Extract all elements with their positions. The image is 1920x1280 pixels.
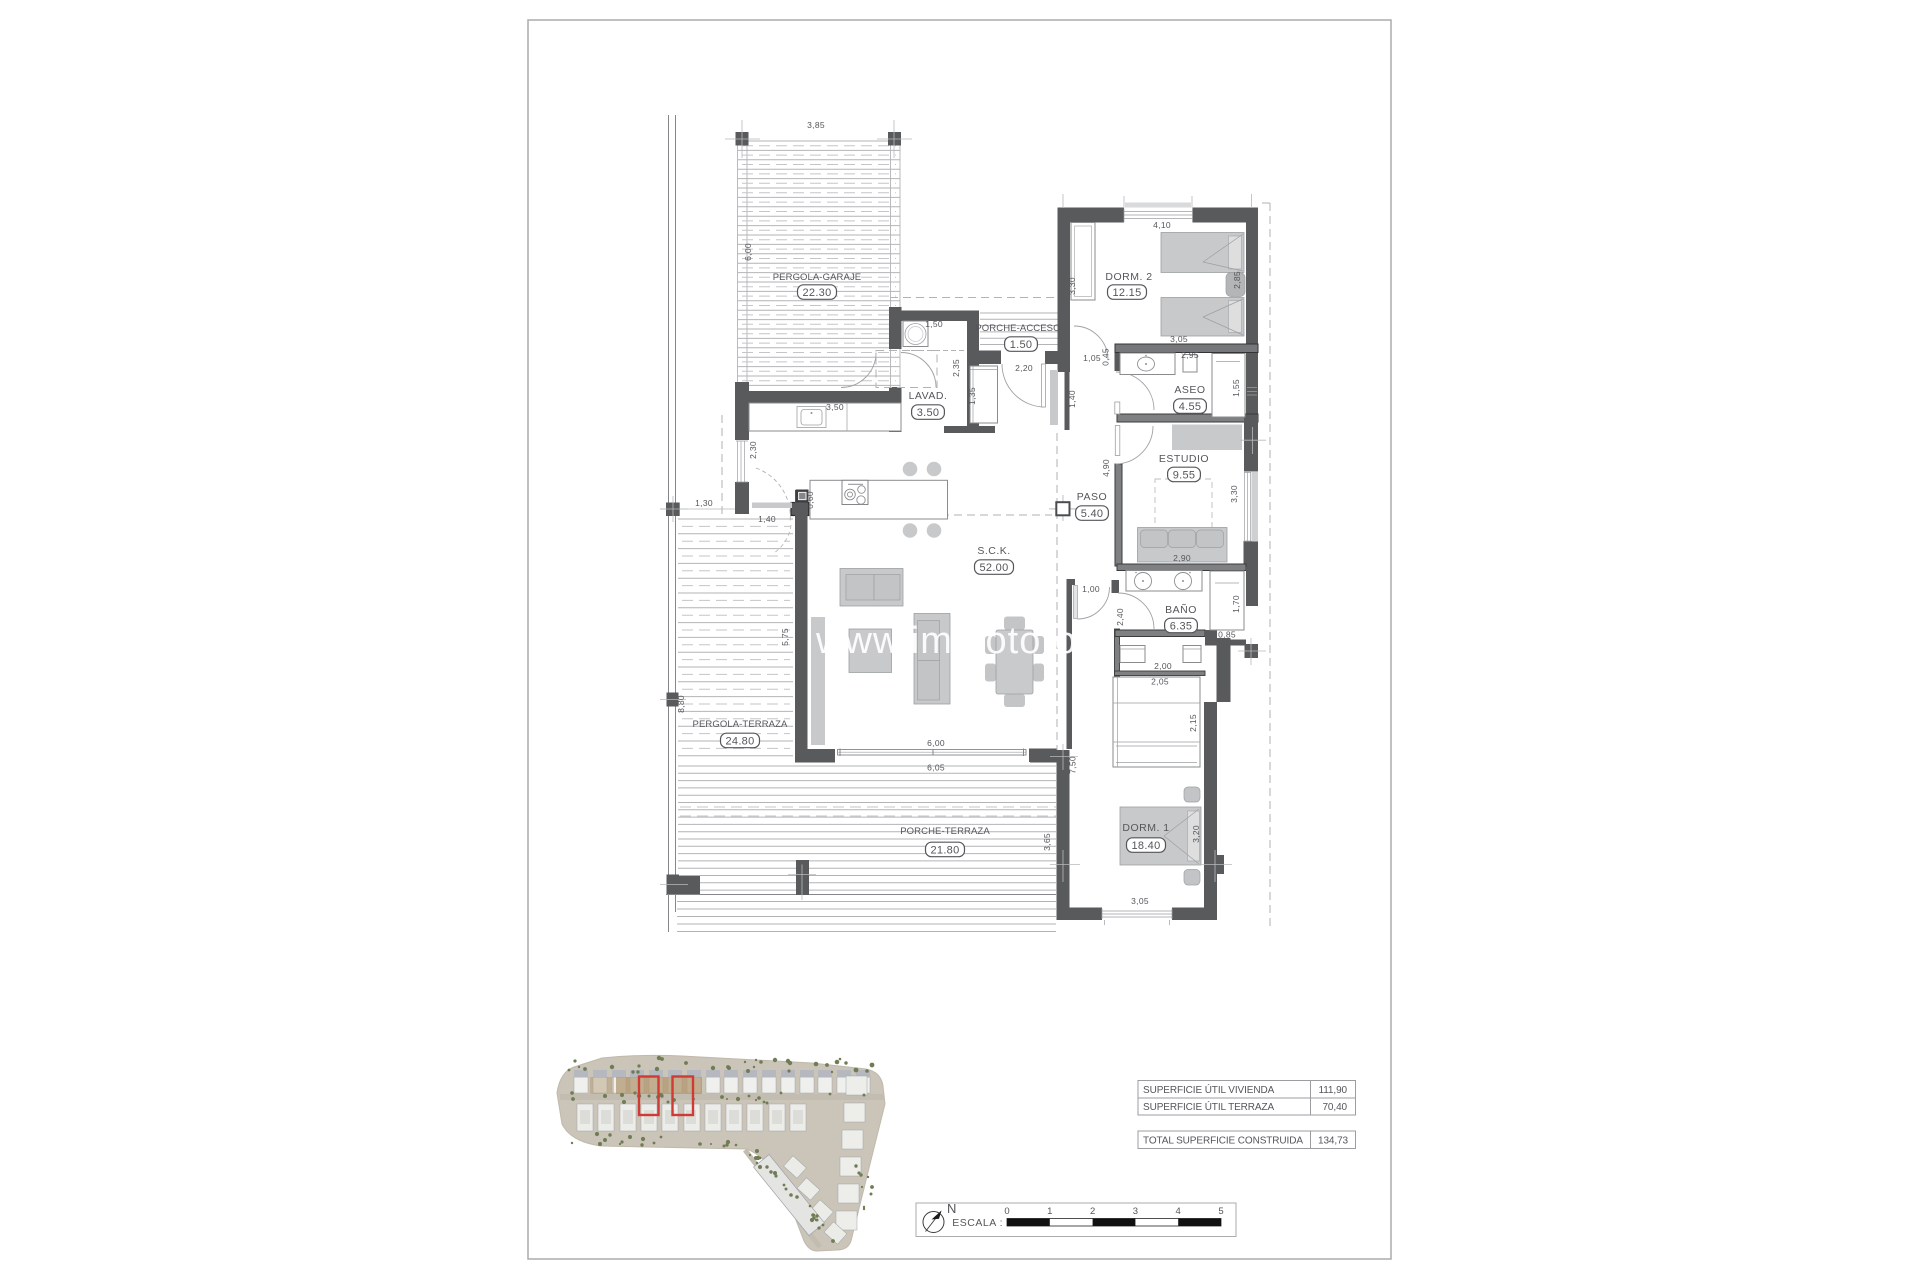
svg-text:PASO: PASO [1077, 491, 1107, 503]
svg-text:1,35: 1,35 [967, 387, 977, 405]
svg-text:S.C.K.: S.C.K. [977, 545, 1010, 557]
svg-text:70,40: 70,40 [1322, 1102, 1347, 1113]
svg-text:3,65: 3,65 [1042, 833, 1052, 851]
svg-text:18.40: 18.40 [1131, 840, 1160, 852]
svg-text:PORCHE-TERRAZA: PORCHE-TERRAZA [900, 826, 990, 837]
svg-text:PERGOLA-TERRAZA: PERGOLA-TERRAZA [693, 719, 788, 730]
svg-text:24.80: 24.80 [725, 735, 754, 747]
svg-text:5.40: 5.40 [1081, 508, 1104, 520]
svg-text:2,05: 2,05 [1151, 677, 1169, 687]
svg-text:1,50: 1,50 [925, 319, 943, 329]
svg-text:5: 5 [1218, 1206, 1223, 1217]
svg-text:1,55: 1,55 [1231, 379, 1241, 397]
svg-text:0: 0 [1004, 1206, 1009, 1217]
svg-text:3.50: 3.50 [917, 407, 940, 419]
svg-text:1,05: 1,05 [1083, 353, 1101, 363]
svg-text:ESCALA :: ESCALA : [952, 1217, 1003, 1229]
svg-text:3: 3 [1133, 1206, 1138, 1217]
svg-text:6,05: 6,05 [927, 763, 945, 773]
svg-text:LAVAD.: LAVAD. [909, 390, 948, 402]
svg-text:1: 1 [1047, 1206, 1052, 1217]
svg-text:7,50: 7,50 [1068, 756, 1078, 774]
svg-text:12.15: 12.15 [1112, 287, 1141, 299]
svg-text:1.50: 1.50 [1010, 339, 1033, 351]
svg-text:PERGOLA-GARAJE: PERGOLA-GARAJE [773, 272, 862, 283]
svg-text:2,90: 2,90 [1173, 553, 1191, 563]
svg-text:1,40: 1,40 [1067, 390, 1077, 408]
svg-text:4: 4 [1176, 1206, 1181, 1217]
svg-text:2,40: 2,40 [1115, 608, 1125, 626]
svg-text:9.55: 9.55 [1173, 469, 1196, 481]
svg-text:3,30: 3,30 [1067, 277, 1077, 295]
svg-text:6,00: 6,00 [927, 738, 945, 748]
svg-text:3,30: 3,30 [1229, 485, 1239, 503]
svg-text:1,30: 1,30 [695, 498, 713, 508]
svg-text:2,20: 2,20 [1015, 363, 1033, 373]
svg-text:5,75: 5,75 [780, 628, 790, 646]
svg-text:2,85: 2,85 [1232, 271, 1242, 289]
svg-text:0,85: 0,85 [1218, 630, 1236, 640]
svg-text:8,80: 8,80 [676, 695, 686, 713]
svg-text:TOTAL SUPERFICIE CONSTRUIDA: TOTAL SUPERFICIE CONSTRUIDA [1143, 1136, 1303, 1147]
svg-text:6.35: 6.35 [1170, 620, 1193, 632]
svg-text:DORM. 2: DORM. 2 [1105, 271, 1152, 283]
svg-text:111,90: 111,90 [1318, 1085, 1347, 1096]
svg-text:SUPERFICIE ÚTIL TERRAZA: SUPERFICIE ÚTIL TERRAZA [1143, 1100, 1274, 1113]
svg-text:DORM. 1: DORM. 1 [1122, 822, 1169, 834]
svg-text:3,85: 3,85 [807, 120, 825, 130]
svg-text:4,10: 4,10 [1153, 220, 1171, 230]
svg-text:1,00: 1,00 [1082, 584, 1100, 594]
svg-text:2,00: 2,00 [1154, 661, 1172, 671]
svg-text:134,73: 134,73 [1318, 1136, 1349, 1147]
svg-text:1,70: 1,70 [1231, 595, 1241, 613]
svg-text:3,20: 3,20 [1191, 825, 1201, 843]
svg-text:0,45: 0,45 [1101, 348, 1111, 366]
svg-text:52.00: 52.00 [979, 562, 1008, 574]
svg-text:SUPERFICIE ÚTIL VIVIENDA: SUPERFICIE ÚTIL VIVIENDA [1143, 1083, 1275, 1096]
svg-text:4,90: 4,90 [1101, 459, 1111, 477]
svg-text:3,05: 3,05 [1170, 334, 1188, 344]
svg-text:BAÑO: BAÑO [1165, 603, 1197, 616]
svg-text:ASEO: ASEO [1174, 384, 1205, 396]
svg-text:2: 2 [1090, 1206, 1095, 1217]
svg-text:2,95: 2,95 [1181, 350, 1199, 360]
svg-text:N: N [947, 1201, 956, 1216]
svg-text:21.80: 21.80 [930, 844, 959, 856]
svg-text:0,60: 0,60 [805, 491, 815, 509]
svg-text:1,40: 1,40 [758, 514, 776, 524]
svg-text:ESTUDIO: ESTUDIO [1159, 453, 1209, 465]
svg-text:2,35: 2,35 [951, 359, 961, 377]
svg-text:6,00: 6,00 [743, 243, 753, 261]
svg-text:22.30: 22.30 [802, 287, 831, 299]
svg-text:3,05: 3,05 [1131, 896, 1149, 906]
svg-text:2,15: 2,15 [1188, 714, 1198, 732]
svg-text:2,30: 2,30 [748, 441, 758, 459]
svg-text:www.immotoro.b: www.immotoro.b [815, 620, 1111, 662]
svg-text:PORCHE-ACCESO: PORCHE-ACCESO [975, 323, 1060, 334]
svg-text:4.55: 4.55 [1179, 401, 1202, 413]
svg-text:3,50: 3,50 [826, 402, 844, 412]
